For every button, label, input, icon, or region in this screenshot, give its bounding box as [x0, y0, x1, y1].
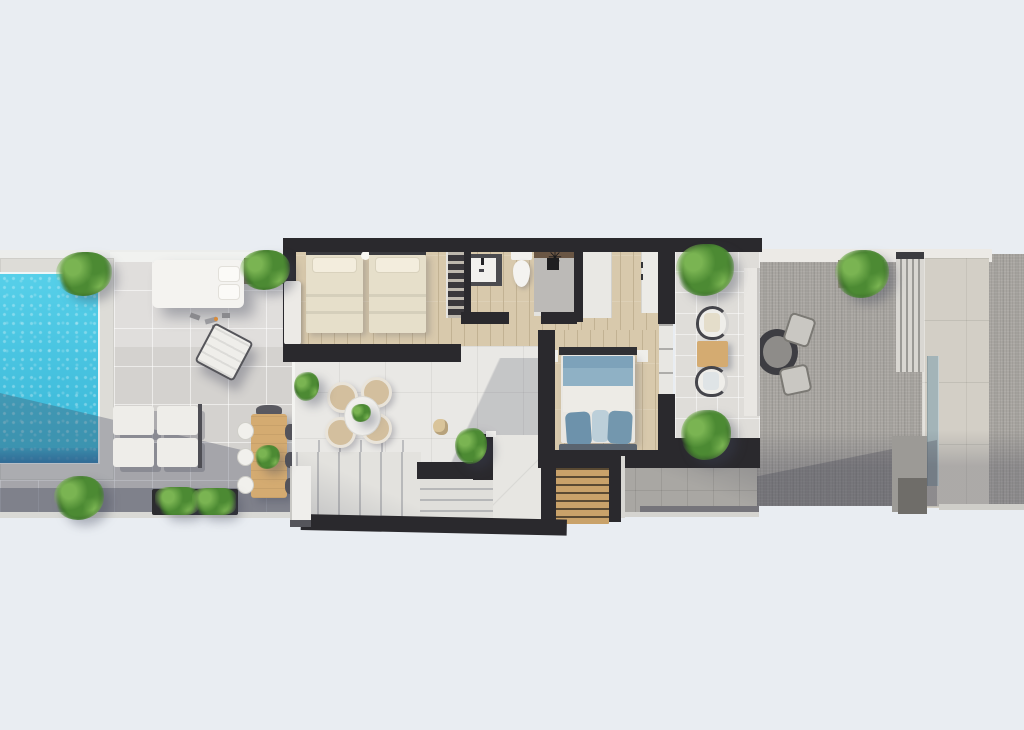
sliding-glass-door: [659, 324, 673, 394]
cat: [433, 419, 448, 435]
wardrobe-handle: [641, 274, 643, 280]
wall-bathroom-low-left: [461, 312, 509, 324]
wall-under-twin-bedroom: [283, 344, 461, 362]
gravel-bottom-edge: [939, 504, 1024, 510]
single-bed-fold: [306, 311, 363, 314]
vanity-drain: [479, 269, 484, 272]
double-bed-blanket: [563, 368, 633, 386]
sun-lounger-frame: [198, 404, 202, 468]
louvered-screen: [896, 254, 924, 372]
wall-bathroom-divider: [574, 242, 583, 322]
nightstand: [637, 350, 648, 362]
wardrobe-handle: [641, 262, 643, 268]
sun-lounger: [157, 406, 198, 435]
wall-under-master: [538, 450, 673, 468]
sun-lounger: [113, 438, 154, 467]
stair-rail-edge: [621, 456, 625, 518]
lower-paving-edge: [609, 512, 759, 517]
stair-rail-right: [609, 454, 621, 522]
balcony-armchair-cushion: [703, 372, 719, 390]
wall-bathroom-low-right: [541, 312, 577, 324]
daybed-pillow: [218, 266, 240, 282]
stair-rail-left: [541, 454, 556, 526]
dining-chair-white: [237, 422, 254, 440]
balcony-armchair-cushion: [704, 313, 720, 332]
gray-block-dark: [898, 478, 927, 514]
single-bed-fold: [369, 311, 426, 314]
bed-pillow-blue: [565, 411, 592, 447]
single-bed-pillow: [312, 257, 357, 273]
single-bed-pillow: [375, 257, 420, 273]
single-bed-fold: [306, 294, 363, 297]
accessory-item-orange: [214, 317, 218, 321]
plant-long-planter: [192, 488, 236, 515]
double-bed-blanket-fold: [563, 356, 633, 368]
terrace-bottom-edge: [0, 512, 293, 518]
closet-wardrobe-left: [581, 245, 612, 318]
wall-right-upper: [658, 238, 675, 324]
sun-lounger: [113, 406, 154, 435]
double-bed-sheet: [563, 386, 633, 412]
double-bed-headboard: [559, 347, 637, 355]
landing-cap-white: [486, 431, 496, 437]
wooden-staircase: [556, 462, 609, 524]
sun-lounger: [157, 438, 198, 467]
wall-bench-white: [284, 281, 301, 345]
white-panel-base: [290, 520, 311, 527]
single-bed-fold: [369, 294, 426, 297]
shower-drain: [547, 258, 559, 270]
dining-chair-white: [237, 448, 254, 466]
daybed-pillow: [218, 284, 240, 300]
vanity-tap: [481, 258, 484, 265]
floorplan-canvas: ✳: [0, 0, 1024, 730]
landing-bar: [417, 462, 493, 479]
balcony-divider-shadow: [757, 268, 760, 416]
dining-chair-white: [237, 476, 254, 494]
bistro-chair: [778, 363, 812, 396]
louvered-screen-cap: [896, 252, 924, 259]
balcony-side-table: [697, 341, 728, 367]
bed-pillow-blue: [607, 410, 633, 444]
wall-master-left: [538, 330, 555, 456]
white-panel-bottom-left: [290, 466, 311, 524]
wall-wardrobe-divider: [464, 246, 471, 318]
accessory-item: [222, 313, 230, 318]
